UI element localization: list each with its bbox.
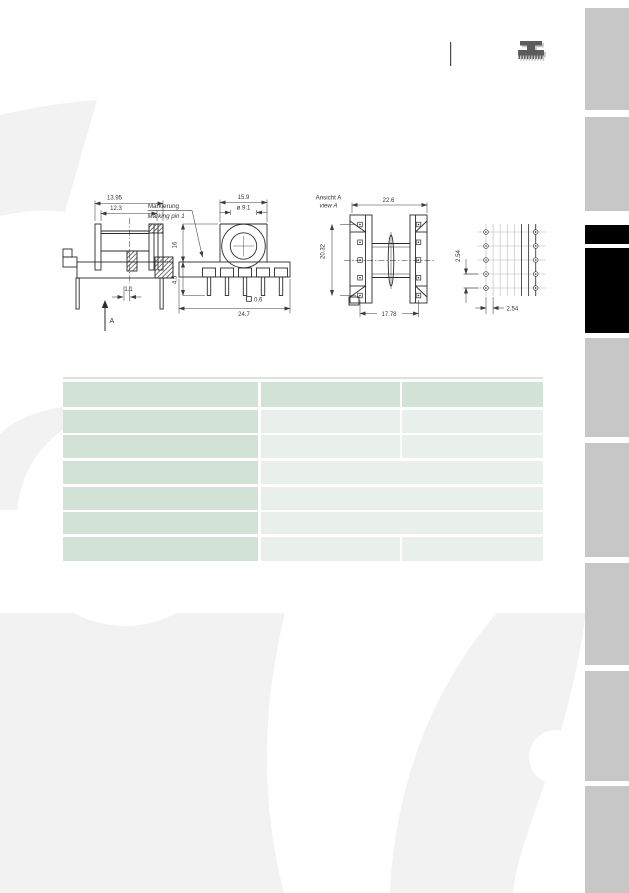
side-index-tab-8 — [585, 671, 629, 781]
dim-label-pin-row-span: 17.78 — [381, 312, 397, 318]
side-index-tab-7 — [585, 563, 629, 665]
table-row — [63, 537, 543, 561]
table-cell — [63, 435, 258, 458]
table-cell — [63, 382, 258, 407]
dim-label-total-width: 24.7 — [238, 312, 250, 318]
table-cell — [63, 487, 258, 510]
dim-label-pin-square: 0.6 — [254, 298, 263, 304]
table-row — [63, 487, 543, 510]
dim-label-horizontal-pitch: 2.54 — [507, 307, 519, 313]
table-cell — [63, 537, 258, 561]
dim-label-view-a-width: 22.6 — [383, 198, 395, 204]
table-row — [63, 435, 543, 458]
table-cell — [261, 512, 543, 534]
side-index-tab-3 — [585, 225, 629, 244]
dim-label-pin-length: 4.5 — [173, 275, 179, 284]
table-top-rule — [63, 377, 543, 379]
table-cell — [402, 382, 543, 407]
header-divider — [450, 42, 451, 66]
table-row — [63, 461, 543, 484]
datasheet-page: 13.95 12.3 1.1 A — [0, 0, 629, 893]
side-index-tab-5 — [585, 338, 629, 437]
view-arrow-label: A — [110, 318, 115, 325]
dim-label-inner-width: 12.3 — [110, 206, 122, 212]
dim-label-pin-column-span: 20.32 — [321, 243, 327, 259]
table-cell — [261, 382, 400, 407]
table-row — [63, 382, 543, 407]
table-row — [63, 410, 543, 433]
side-index-tab-6 — [585, 443, 629, 557]
table-cell — [261, 487, 543, 510]
table-cell — [402, 537, 543, 561]
dim-label-body-height: 16 — [173, 241, 179, 248]
dim-label-hole-diameter: ø 9.1 — [237, 206, 251, 212]
marking-label-de: Markierung — [148, 203, 180, 210]
table-cell — [63, 410, 258, 433]
drawing-view-a: Ansicht A view A 22.6 20.32 17.78 — [316, 195, 434, 319]
watermark-ring-bottom-left — [0, 613, 285, 893]
dim-label-top-width: 15.9 — [238, 195, 250, 201]
coil-former-icon — [518, 41, 546, 61]
dim-label-pin-offset: 1.1 — [124, 287, 133, 293]
table-row — [63, 512, 543, 534]
table-cell — [261, 537, 400, 561]
table-cell — [63, 512, 258, 534]
drawing-pin-grid: 2.54 2.54 — [456, 224, 546, 314]
table-cell — [261, 461, 543, 484]
table-cell — [261, 435, 400, 458]
dim-label-vertical-pitch: 2.54 — [456, 250, 462, 262]
dimension-table — [63, 377, 543, 561]
table-cell — [402, 410, 543, 433]
view-a-label-en: view A — [320, 203, 338, 210]
view-a-label-de: Ansicht A — [316, 195, 343, 202]
side-index-tab-2 — [585, 117, 629, 211]
side-index-tab-4 — [585, 248, 629, 333]
side-index-tab-1 — [585, 8, 629, 110]
table-cell — [402, 435, 543, 458]
side-index-tab-9 — [585, 786, 629, 893]
watermark-band-top-left — [0, 100, 97, 216]
table-cell — [261, 410, 400, 433]
table-cell — [63, 461, 258, 484]
marking-label-en: Marking pin 1 — [148, 213, 185, 220]
dim-label-outer-width: 13.95 — [107, 196, 123, 202]
drawing-front-view: Markierung Marking pin 1 15.9 ø 9.1 16 4… — [148, 195, 291, 318]
